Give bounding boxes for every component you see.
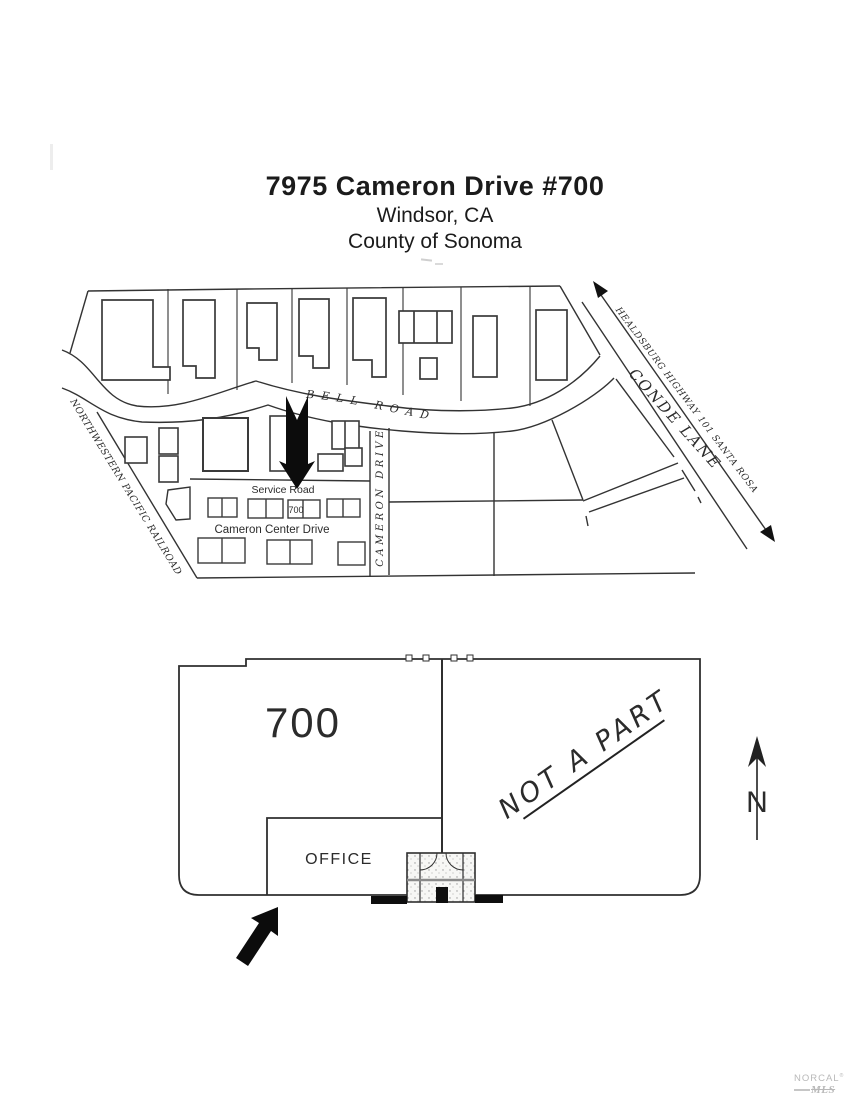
driveway-south-edge <box>589 478 684 512</box>
unit-700-box-label: 700 <box>288 505 303 515</box>
logo-sub: MLS <box>811 1085 835 1096</box>
bell-road-label: BELL ROAD <box>305 388 437 424</box>
unit-boxes-cameron-center <box>198 538 365 565</box>
not-a-part-label: NOT A PART <box>493 684 676 825</box>
floor-plan <box>179 655 700 904</box>
north-label: N <box>746 786 768 819</box>
highway-arrow-north-icon <box>593 281 608 298</box>
site-map <box>62 281 775 578</box>
wall-segment <box>475 895 503 903</box>
unit-700-label: 700 <box>265 699 341 746</box>
wall-segment <box>371 896 407 904</box>
driveway-north-edge <box>583 463 678 501</box>
cameron-drive-label: CAMERON DRIVE <box>375 427 386 567</box>
driveway-tick <box>586 516 588 526</box>
entry-arrow-icon <box>236 907 278 966</box>
unit-boxes-service-road <box>208 498 360 518</box>
service-road-label: Service Road <box>251 484 314 496</box>
scanned-property-map-page: 7975 Cameron Drive #700 Windsor, CA Coun… <box>0 0 850 1100</box>
parcel-diagonal <box>552 420 583 500</box>
not-a-part-annotation: NOT A PART <box>493 684 678 827</box>
registered-mark-icon: ® <box>840 1073 845 1079</box>
conde-lane-east-edge <box>582 302 747 549</box>
cameron-center-drive-label: Cameron Center Drive <box>214 524 329 536</box>
svg-text:BELL ROAD: BELL ROAD <box>305 388 437 424</box>
highway-label: HEALDSBURG HIGHWAY 101 SANTA ROSA <box>612 305 759 496</box>
buildings-north-row <box>102 298 567 380</box>
buildings-mid-row <box>125 416 362 482</box>
highway-arrow-south-icon <box>760 525 775 542</box>
norcal-mls-logo: NORCAL® MLS <box>794 1074 850 1096</box>
top-edge-ticks <box>406 655 473 661</box>
small-lot <box>166 487 190 520</box>
logo-rule <box>794 1089 810 1091</box>
map-south-boundary <box>197 573 695 578</box>
map-north-boundary <box>88 286 560 291</box>
parcel-line-horizontal <box>389 500 583 502</box>
logo-brand: NORCAL <box>794 1073 840 1084</box>
highway-101-line <box>601 295 766 530</box>
office-label: OFFICE <box>305 851 373 868</box>
north-arrow: N <box>746 736 768 840</box>
railroad-label: NORTHWESTERN PACIFIC RAILROAD <box>67 396 184 577</box>
service-road-edge <box>190 479 370 481</box>
map-west-corner <box>70 291 88 353</box>
entry-vestibule <box>371 853 503 904</box>
map-and-floorplan-drawing: BELL ROAD CONDE LANE HEALDSBURG HIGHWAY … <box>0 0 850 1100</box>
